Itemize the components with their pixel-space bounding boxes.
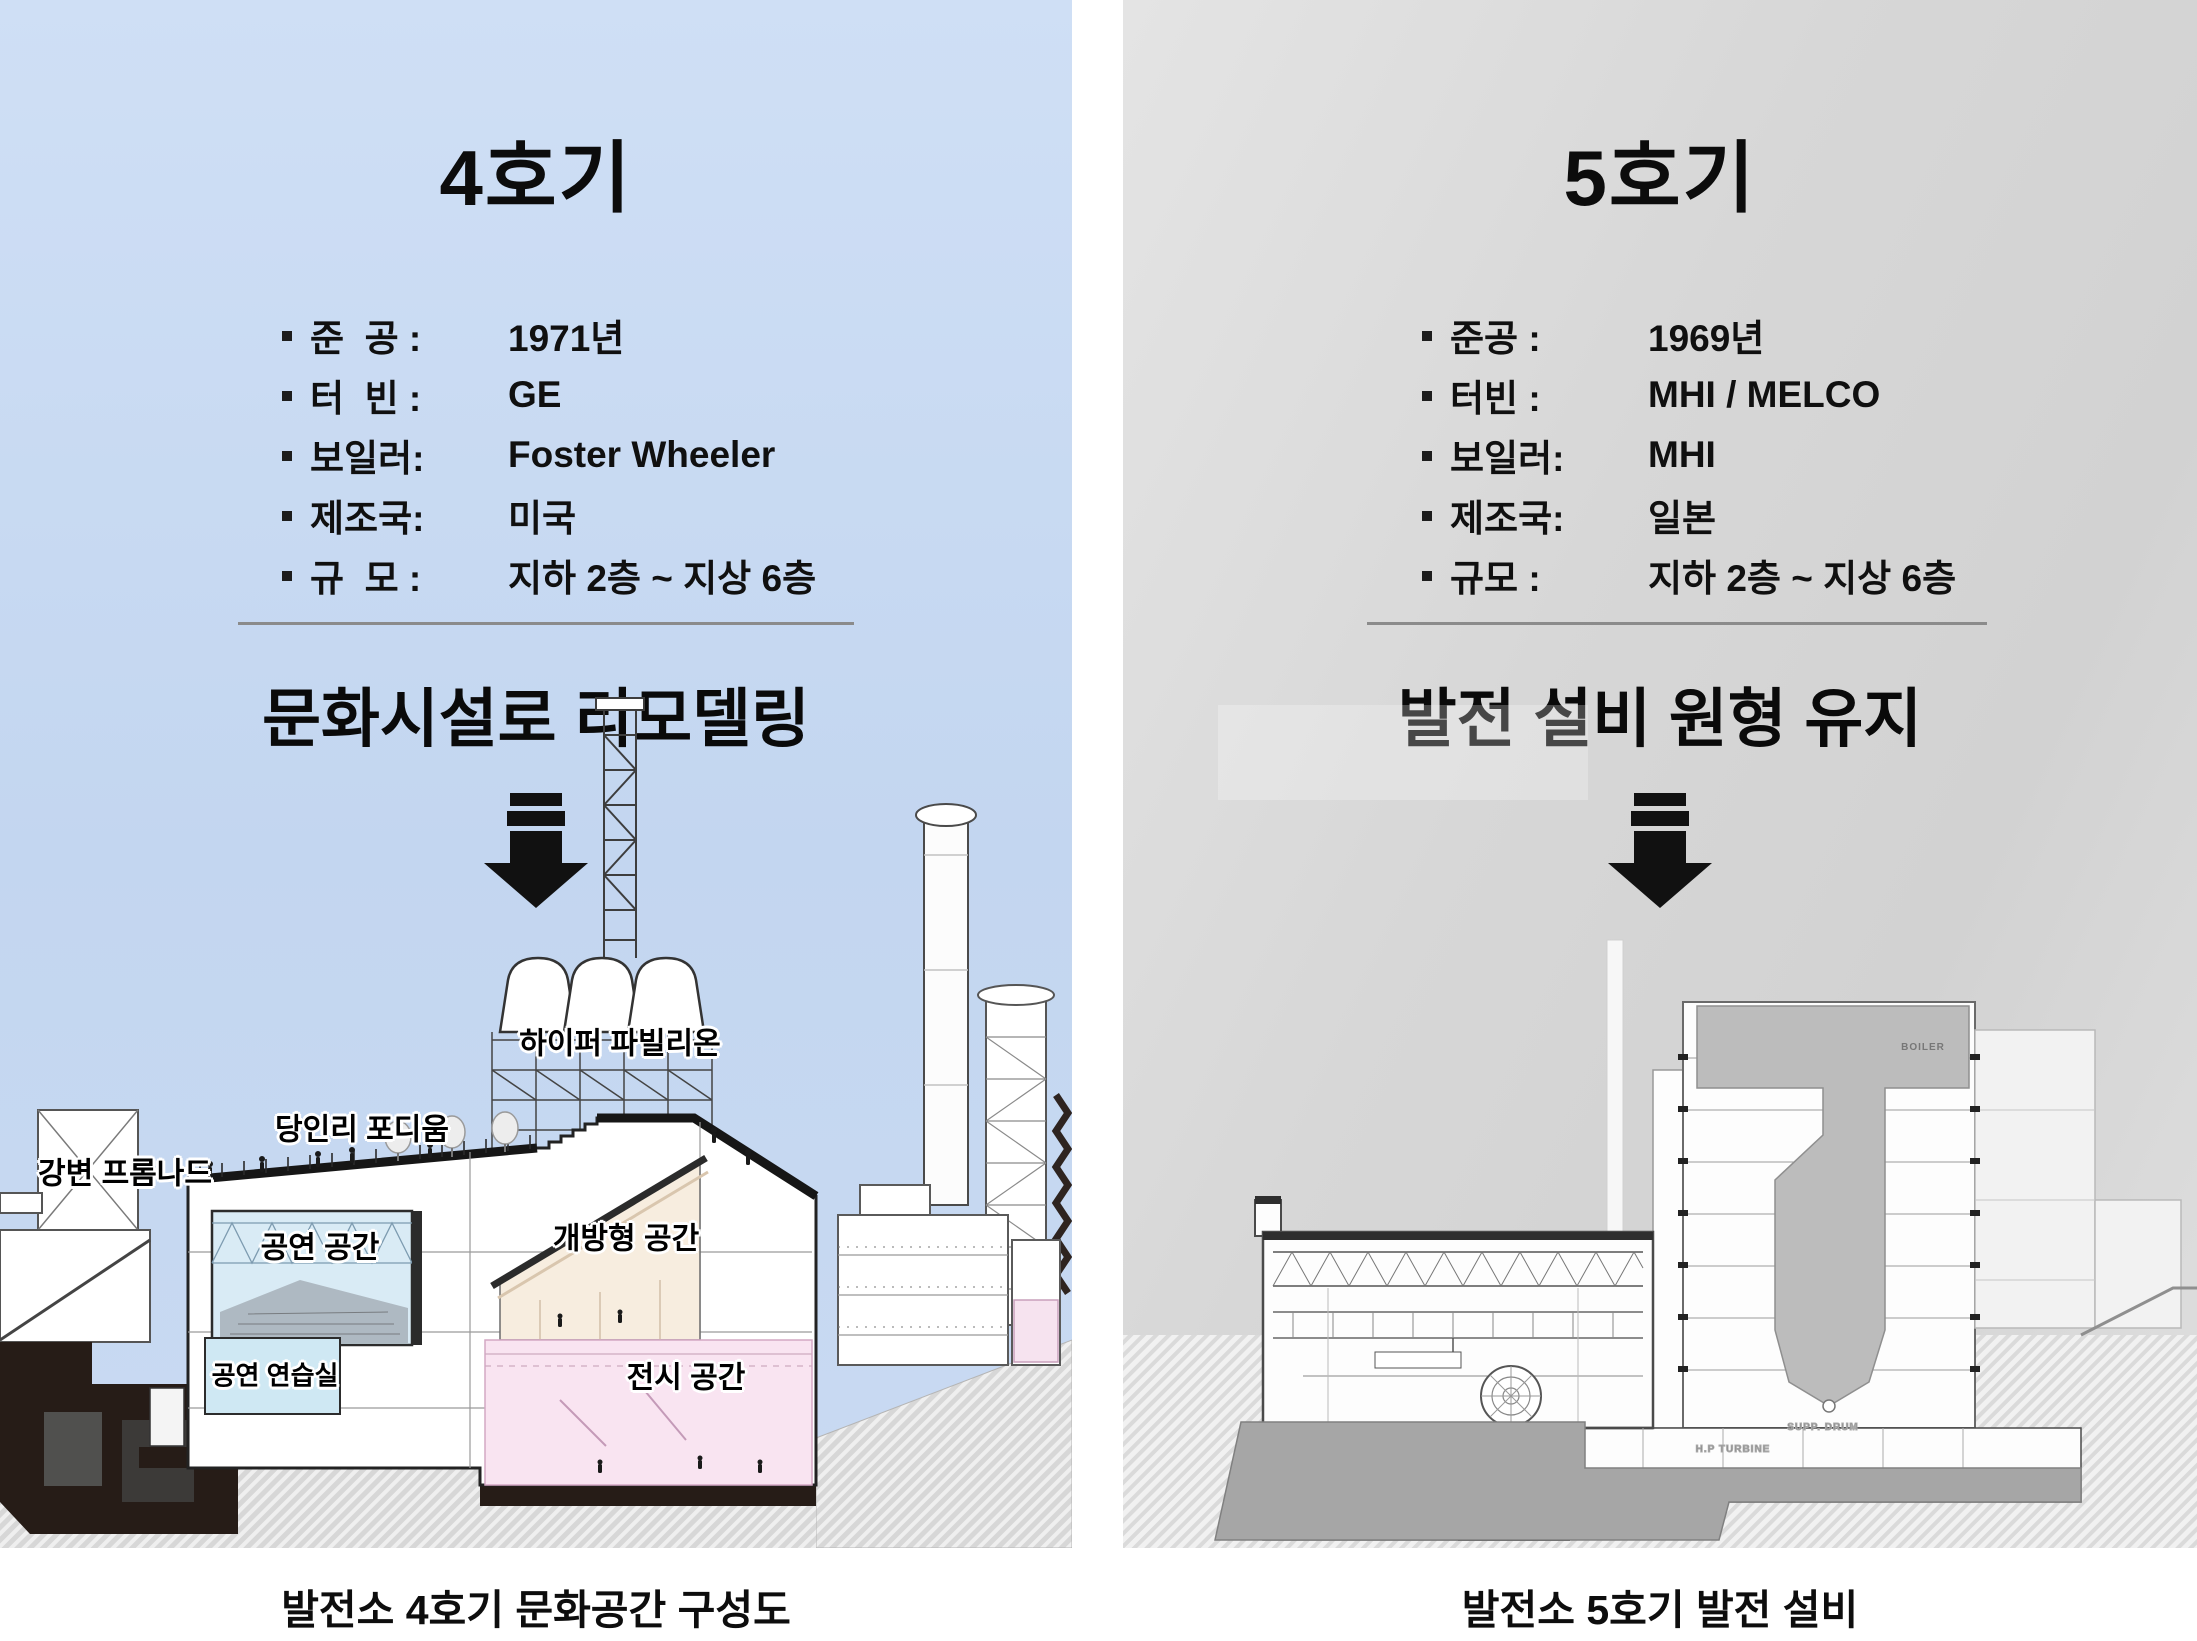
spec-row: 터빈 : MHI / MELCO xyxy=(1422,368,1956,414)
label-performance-space: 공연 공간 xyxy=(261,1232,380,1265)
spec-value: MHI xyxy=(1648,434,1956,476)
spec-row: 규 모 : 지하 2층 ~ 지상 6층 xyxy=(282,548,816,594)
spec-value: 1971년 xyxy=(508,308,816,362)
label-exhibition-space: 전시 공간 xyxy=(627,1362,746,1395)
bullet-icon xyxy=(1422,511,1432,521)
spec-label: 규모 : xyxy=(1450,548,1648,602)
spec-label: 보일러: xyxy=(310,428,508,482)
unit5-title: 5호기 xyxy=(1564,116,1757,228)
label-podium: 당인리 포디움 xyxy=(275,1114,449,1147)
unit5-caption: 발전소 5호기 발전 설비 xyxy=(1462,1576,1858,1636)
spec-value: 지하 2층 ~ 지상 6층 xyxy=(1648,548,1956,602)
label-promenade: 강변 프롬나드 xyxy=(38,1158,212,1191)
boiler-label: BOILER xyxy=(1901,1042,1945,1053)
spec-label: 제조국: xyxy=(1450,488,1648,542)
ghost-shape xyxy=(1218,705,1588,800)
spec-row: 준공 : 1969년 xyxy=(1422,308,1956,354)
spec-value: MHI / MELCO xyxy=(1648,374,1956,416)
label-practice-room: 공연 연습실 xyxy=(212,1362,339,1391)
panel-unit4: 4호기 준 공 : 1971년 터 빈 : GE 보일러: Foster Whe… xyxy=(0,0,1072,1548)
bullet-icon xyxy=(282,511,292,521)
foundation-right xyxy=(480,1485,816,1506)
spec-row: 제조국: 일본 xyxy=(1422,488,1956,534)
spec-row: 보일러: MHI xyxy=(1422,428,1956,474)
infographic: 4호기 준 공 : 1971년 터 빈 : GE 보일러: Foster Whe… xyxy=(0,0,2197,1641)
spec-label: 터 빈 : xyxy=(310,368,508,422)
unit4-section-drawing xyxy=(0,640,1072,1548)
lattice-mast xyxy=(596,698,644,958)
spec-row: 준 공 : 1971년 xyxy=(282,308,816,354)
spec-value: 지하 2층 ~ 지상 6층 xyxy=(508,548,816,602)
label-hyper-pavilion: 하이퍼 파빌리온 xyxy=(519,1028,721,1061)
unit5-spec-list: 준공 : 1969년 터빈 : MHI / MELCO 보일러: MHI 제조국… xyxy=(1422,308,1956,594)
ground-right xyxy=(816,1340,1072,1548)
spec-value: Foster Wheeler xyxy=(508,434,816,476)
panel-unit5: 5호기 준공 : 1969년 터빈 : MHI / MELCO 보일러: MHI… xyxy=(1123,0,2197,1548)
bullet-icon xyxy=(282,451,292,461)
spec-label: 보일러: xyxy=(1450,428,1648,482)
bullet-icon xyxy=(1422,391,1432,401)
spec-label: 규 모 : xyxy=(310,548,508,602)
spec-row: 보일러: Foster Wheeler xyxy=(282,428,816,474)
unit4-spec-list: 준 공 : 1971년 터 빈 : GE 보일러: Foster Wheeler… xyxy=(282,308,816,594)
bullet-icon xyxy=(1422,331,1432,341)
bullet-icon xyxy=(282,391,292,401)
spec-row: 터 빈 : GE xyxy=(282,368,816,414)
divider-line xyxy=(1367,622,1987,625)
bullet-icon xyxy=(282,331,292,341)
spec-label: 준공 : xyxy=(1450,308,1648,362)
chimney xyxy=(916,804,976,1205)
bullet-icon xyxy=(1422,451,1432,461)
pavilion-funnels xyxy=(500,958,704,1032)
unit4-caption: 발전소 4호기 문화공간 구성도 xyxy=(281,1576,791,1636)
spec-value: 일본 xyxy=(1648,488,1956,542)
spec-label: 터빈 : xyxy=(1450,368,1648,422)
spec-value: 미국 xyxy=(508,488,816,542)
unit4-title: 4호기 xyxy=(440,116,633,228)
label-open-space: 개방형 공간 xyxy=(553,1223,699,1256)
turbine-label: H.P TURBINE xyxy=(1696,1444,1771,1455)
promenade-structures xyxy=(0,1110,150,1342)
bullet-icon xyxy=(282,571,292,581)
divider-line xyxy=(238,622,854,625)
spec-row: 제조국: 미국 xyxy=(282,488,816,534)
unit5-section-drawing: BOILER xyxy=(1123,640,2197,1548)
spec-value: 1969년 xyxy=(1648,308,1956,362)
bullet-icon xyxy=(1422,571,1432,581)
spec-label: 제조국: xyxy=(310,488,508,542)
drum-label: SUPP. DRUM xyxy=(1787,1422,1859,1433)
spec-value: GE xyxy=(508,374,816,416)
spec-row: 규모 : 지하 2층 ~ 지상 6층 xyxy=(1422,548,1956,594)
spec-label: 준 공 : xyxy=(310,308,508,362)
background-stack xyxy=(1607,940,1623,1232)
